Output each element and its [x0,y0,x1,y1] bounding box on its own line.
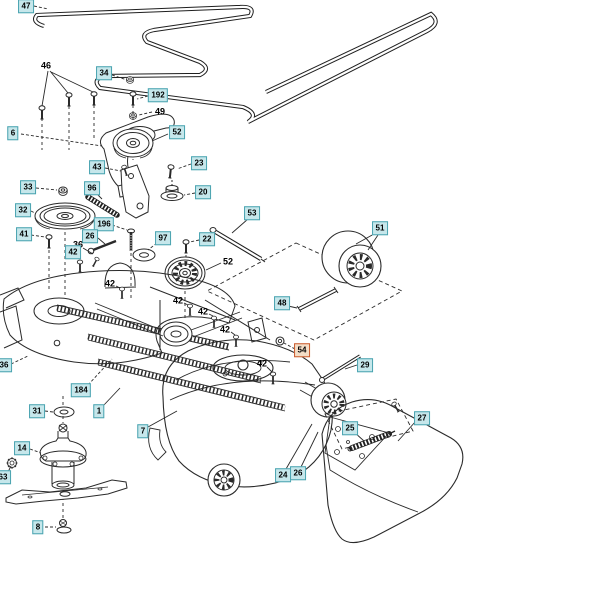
part-label-14[interactable]: 14 [14,441,30,455]
part-label-8[interactable]: 8 [32,520,43,534]
part-label-184[interactable]: 184 [71,383,91,397]
part-label-42[interactable]: 42 [257,360,267,369]
part-label-20[interactable]: 20 [195,185,211,199]
part-label-26[interactable]: 26 [82,229,98,243]
part-label-46[interactable]: 46 [41,62,51,71]
part-label-42[interactable]: 42 [198,308,208,317]
part-label-22[interactable]: 22 [199,232,215,246]
part-label-25[interactable]: 25 [342,421,358,435]
part-label-52[interactable]: 52 [223,258,233,267]
part-label-7[interactable]: 7 [137,424,148,438]
part-label-49[interactable]: 49 [155,108,165,117]
part-label-29[interactable]: 29 [357,358,373,372]
part-label-53[interactable]: 53 [244,206,260,220]
part-label-32[interactable]: 32 [15,203,31,217]
part-label-34[interactable]: 34 [96,66,112,80]
part-label-27[interactable]: 27 [414,411,430,425]
part-label-96[interactable]: 96 [84,181,100,195]
parts-diagram-page: 4746341924965243233396203253196514126972… [0,0,603,611]
part-label-23[interactable]: 23 [191,156,207,170]
part-label-52[interactable]: 52 [169,125,185,139]
part-label-layer: 4746341924965243233396203253196514126972… [0,0,603,611]
part-label-33[interactable]: 33 [20,180,36,194]
part-label-63[interactable]: 63 [0,470,11,484]
part-label-6[interactable]: 6 [7,126,18,140]
part-label-47[interactable]: 47 [18,0,34,13]
part-label-54[interactable]: 54 [294,343,310,357]
part-label-43[interactable]: 43 [89,160,105,174]
part-label-48[interactable]: 48 [274,296,290,310]
part-label-42[interactable]: 42 [220,326,230,335]
part-label-41[interactable]: 41 [16,227,32,241]
part-label-24[interactable]: 24 [275,468,291,482]
part-label-31[interactable]: 31 [29,404,45,418]
part-label-42[interactable]: 42 [173,297,183,306]
part-label-97[interactable]: 97 [155,231,171,245]
part-label-1[interactable]: 1 [93,404,104,418]
part-label-36[interactable]: 36 [0,358,12,372]
part-label-42[interactable]: 42 [65,245,81,259]
part-label-42[interactable]: 42 [105,280,115,289]
part-label-51[interactable]: 51 [372,221,388,235]
part-label-26[interactable]: 26 [290,466,306,480]
part-label-192[interactable]: 192 [148,88,168,102]
